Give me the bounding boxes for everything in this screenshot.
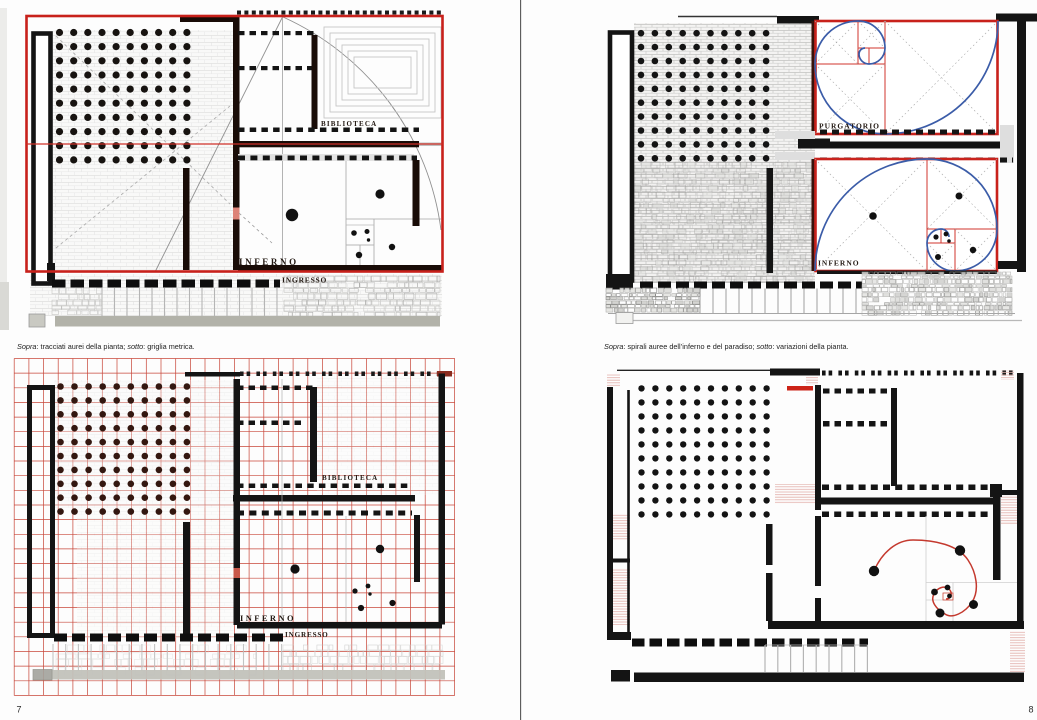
svg-text:7: 7 bbox=[17, 705, 22, 715]
svg-text:INFERNO: INFERNO bbox=[818, 259, 860, 268]
svg-text:Sopra: tracciati aurei della p: Sopra: tracciati aurei della pianta; sot… bbox=[17, 342, 195, 351]
svg-text:PURGATORIO: PURGATORIO bbox=[819, 122, 880, 131]
svg-text:Sopra: spirali auree dell’infe: Sopra: spirali auree dell’inferno e del … bbox=[604, 342, 849, 351]
svg-text:BIBLIOTECA: BIBLIOTECA bbox=[322, 474, 378, 482]
svg-text:INGRESSO: INGRESSO bbox=[285, 631, 329, 639]
svg-text:INGRESSO: INGRESSO bbox=[282, 276, 327, 285]
svg-text:INFERNO: INFERNO bbox=[240, 613, 296, 623]
svg-text:8: 8 bbox=[1029, 705, 1034, 715]
svg-text:BIBLIOTECA: BIBLIOTECA bbox=[321, 120, 377, 128]
